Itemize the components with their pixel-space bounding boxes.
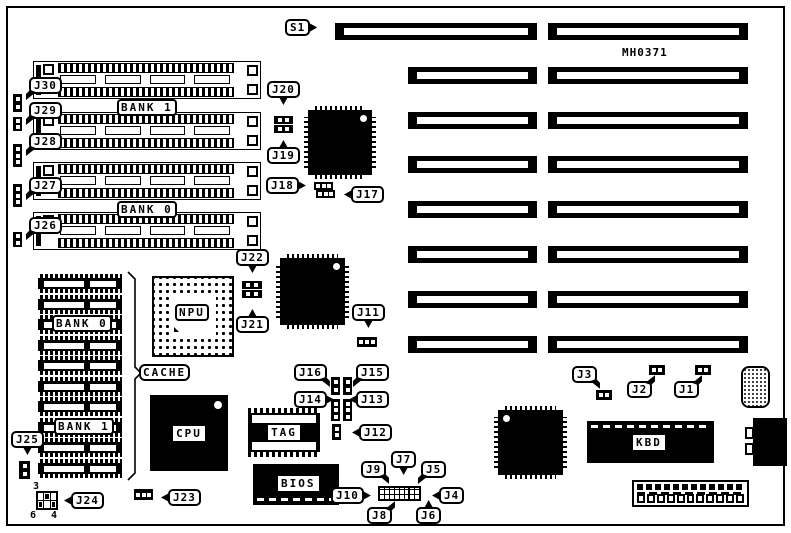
npu-socket: NPU — [152, 276, 234, 357]
callout-j5: J5 — [421, 461, 446, 478]
bank1-cache-label: BANK 1 — [54, 418, 114, 435]
jumper-block — [343, 377, 352, 395]
socket-latch — [247, 135, 258, 146]
isa-slot — [335, 23, 537, 40]
cache-chip-row — [38, 274, 122, 293]
chip-body — [44, 281, 84, 287]
slot-opening — [557, 117, 739, 124]
cache-chip-row — [38, 459, 122, 478]
jumper-block — [596, 390, 612, 400]
pin-row — [58, 87, 234, 97]
socket-notch — [43, 64, 54, 75]
cache-chip-row — [38, 438, 122, 457]
kbd-chip: KBD — [587, 421, 714, 463]
chip-body — [90, 404, 116, 410]
callout-j21: J21 — [236, 316, 269, 333]
motherboard-jumper-diagram: MH0371 S1J30J29J28J27J26J20J19J18J17J22J… — [0, 0, 791, 533]
callout-j8: J8 — [367, 507, 392, 524]
callout-j15: J15 — [356, 364, 389, 381]
simm-socket — [33, 61, 261, 99]
isa-slot — [408, 201, 537, 218]
pin1-marker — [174, 327, 179, 332]
isa-slot — [548, 336, 748, 353]
slot-opening — [557, 296, 739, 303]
pin1-dot — [360, 115, 367, 122]
pin1-dot — [214, 401, 222, 409]
chip-body — [44, 302, 84, 308]
pin-row — [58, 63, 234, 73]
bank0-cache-label: BANK 0 — [52, 315, 112, 332]
isa-slot — [408, 156, 537, 173]
callout-j12: J12 — [359, 424, 392, 441]
slot-opening — [557, 341, 739, 348]
jumper-block — [274, 116, 293, 124]
board-code: MH0371 — [622, 46, 668, 59]
slot-opening — [344, 28, 528, 35]
socket-body — [60, 176, 230, 185]
cache-chip-row — [38, 397, 122, 416]
callout-j30: J30 — [29, 77, 62, 94]
npu-socket-cavity: NPU — [171, 297, 216, 336]
isa-slot — [548, 112, 748, 129]
kbd-label: KBD — [632, 434, 666, 451]
j24-pin4-number: 4 — [51, 511, 57, 521]
slot-opening — [557, 72, 739, 79]
bank1-simm-label: BANK 1 — [117, 99, 177, 116]
chip-body — [44, 404, 84, 410]
socket-latch — [247, 65, 258, 76]
socket-latch — [247, 235, 258, 246]
isa-slot — [408, 246, 537, 263]
chip-body — [44, 343, 84, 349]
qfp-chip-3 — [498, 410, 563, 475]
jumper-block — [274, 125, 293, 133]
jumper-block — [242, 281, 262, 289]
callout-j26: J26 — [29, 217, 62, 234]
slot-opening — [417, 341, 528, 348]
simm-socket — [33, 112, 261, 150]
jumper-block — [649, 365, 665, 375]
callout-j29: J29 — [29, 102, 62, 119]
pin1-dot — [333, 263, 340, 270]
jumper-block — [134, 489, 153, 500]
callout-j23: J23 — [168, 489, 201, 506]
isa-slot — [408, 112, 537, 129]
callout-j4: J4 — [439, 487, 464, 504]
chip-body — [90, 384, 116, 390]
pin1-dot — [503, 415, 510, 422]
callout-j16: J16 — [294, 364, 327, 381]
callout-j1: J1 — [674, 381, 699, 398]
callout-j24: J24 — [71, 492, 104, 509]
callout-j13: J13 — [356, 391, 389, 408]
j24-pin6-number: 6 — [30, 511, 36, 521]
pin-row — [58, 188, 234, 198]
slot-opening — [557, 161, 739, 168]
cpu-chip: CPU — [150, 395, 228, 471]
j24-pin3-number: 3 — [33, 482, 39, 492]
socket-latch — [247, 116, 258, 127]
isa-slot — [548, 67, 748, 84]
isa-slot — [548, 246, 748, 263]
callout-j19: J19 — [267, 147, 300, 164]
slot-opening — [417, 161, 528, 168]
callout-j20: J20 — [267, 81, 300, 98]
chip-body — [90, 445, 116, 451]
isa-slot — [548, 201, 748, 218]
chip-body — [44, 384, 84, 390]
chip-body — [90, 466, 116, 472]
tag-label: TAG — [267, 424, 301, 441]
callout-s1: S1 — [285, 19, 310, 36]
callout-j2: J2 — [627, 381, 652, 398]
chip-body — [44, 466, 84, 472]
tag-chip: TAG — [248, 408, 320, 457]
bank0-simm-label: BANK 0 — [117, 201, 177, 218]
socket-latch — [247, 185, 258, 196]
socket-latch — [247, 166, 258, 177]
slot-opening — [417, 206, 528, 213]
qfp-chip-2 — [280, 258, 345, 325]
callout-j28: J28 — [29, 133, 62, 150]
jumper-block — [13, 117, 22, 131]
slot-opening — [557, 251, 739, 258]
cache-label: CACHE — [139, 364, 190, 381]
chip-body — [90, 281, 116, 287]
callout-j17: J17 — [351, 186, 384, 203]
cpu-label: CPU — [172, 425, 206, 442]
cache-chip-row — [38, 336, 122, 355]
callout-j3: J3 — [572, 366, 597, 383]
jumper-block — [332, 424, 341, 440]
jumper-block — [13, 184, 22, 207]
jumper-block — [695, 365, 711, 375]
j24-jumper-block — [36, 491, 58, 510]
jumper-block — [316, 190, 335, 198]
callout-j14: J14 — [294, 391, 327, 408]
isa-slot — [408, 67, 537, 84]
isa-slot — [408, 336, 537, 353]
qfp-chip-1 — [308, 110, 372, 175]
jumper-block — [331, 399, 340, 421]
cache-chip-row — [38, 356, 122, 375]
chip-body — [90, 363, 116, 369]
slot-opening — [417, 117, 528, 124]
npu-label: NPU — [175, 304, 209, 321]
socket-body — [60, 126, 230, 135]
slot-opening — [557, 206, 739, 213]
bottom-pin-header — [632, 480, 749, 507]
slot-opening — [417, 251, 528, 258]
j4-j10-jumper-header — [378, 486, 421, 501]
slot-opening — [417, 296, 528, 303]
jumper-block — [314, 182, 333, 190]
bios-label: BIOS — [277, 475, 320, 492]
socket-body — [60, 75, 230, 84]
callout-j11: J11 — [352, 304, 385, 321]
socket-latch — [247, 84, 258, 95]
callout-j9: J9 — [361, 461, 386, 478]
jumper-block — [242, 290, 262, 298]
socket-latch — [247, 216, 258, 227]
keyboard-din-connector — [741, 366, 770, 408]
jumper-block — [357, 337, 377, 347]
slot-opening — [557, 28, 739, 35]
chip-body — [90, 343, 116, 349]
chip-body — [90, 302, 116, 308]
isa-slot — [548, 156, 748, 173]
callout-j18: J18 — [266, 177, 299, 194]
simm-socket — [33, 162, 261, 200]
pin-row — [58, 164, 234, 174]
jumper-block — [343, 399, 352, 421]
jumper-block — [13, 232, 22, 247]
slot-opening — [417, 72, 528, 79]
socket-notch — [43, 165, 54, 176]
callout-j25: J25 — [11, 431, 44, 448]
callout-j6: J6 — [416, 507, 441, 524]
chip-body — [44, 363, 84, 369]
jumper-block — [19, 461, 30, 479]
callout-j7: J7 — [391, 451, 416, 468]
isa-slot — [408, 291, 537, 308]
callout-j27: J27 — [29, 177, 62, 194]
callout-j10: J10 — [331, 487, 364, 504]
jumper-block — [13, 144, 22, 167]
power-connector — [753, 418, 787, 466]
chip-body — [44, 445, 84, 451]
cache-chip-row — [38, 295, 122, 314]
jumper-block — [331, 377, 340, 395]
isa-slot — [548, 23, 748, 40]
cache-chip-row — [38, 377, 122, 396]
isa-slot — [548, 291, 748, 308]
callout-j22: J22 — [236, 249, 269, 266]
pin-row — [58, 138, 234, 148]
pin-row — [58, 238, 234, 248]
jumper-block — [13, 94, 22, 112]
socket-body — [60, 226, 230, 235]
bios-chip: BIOS — [253, 464, 339, 505]
